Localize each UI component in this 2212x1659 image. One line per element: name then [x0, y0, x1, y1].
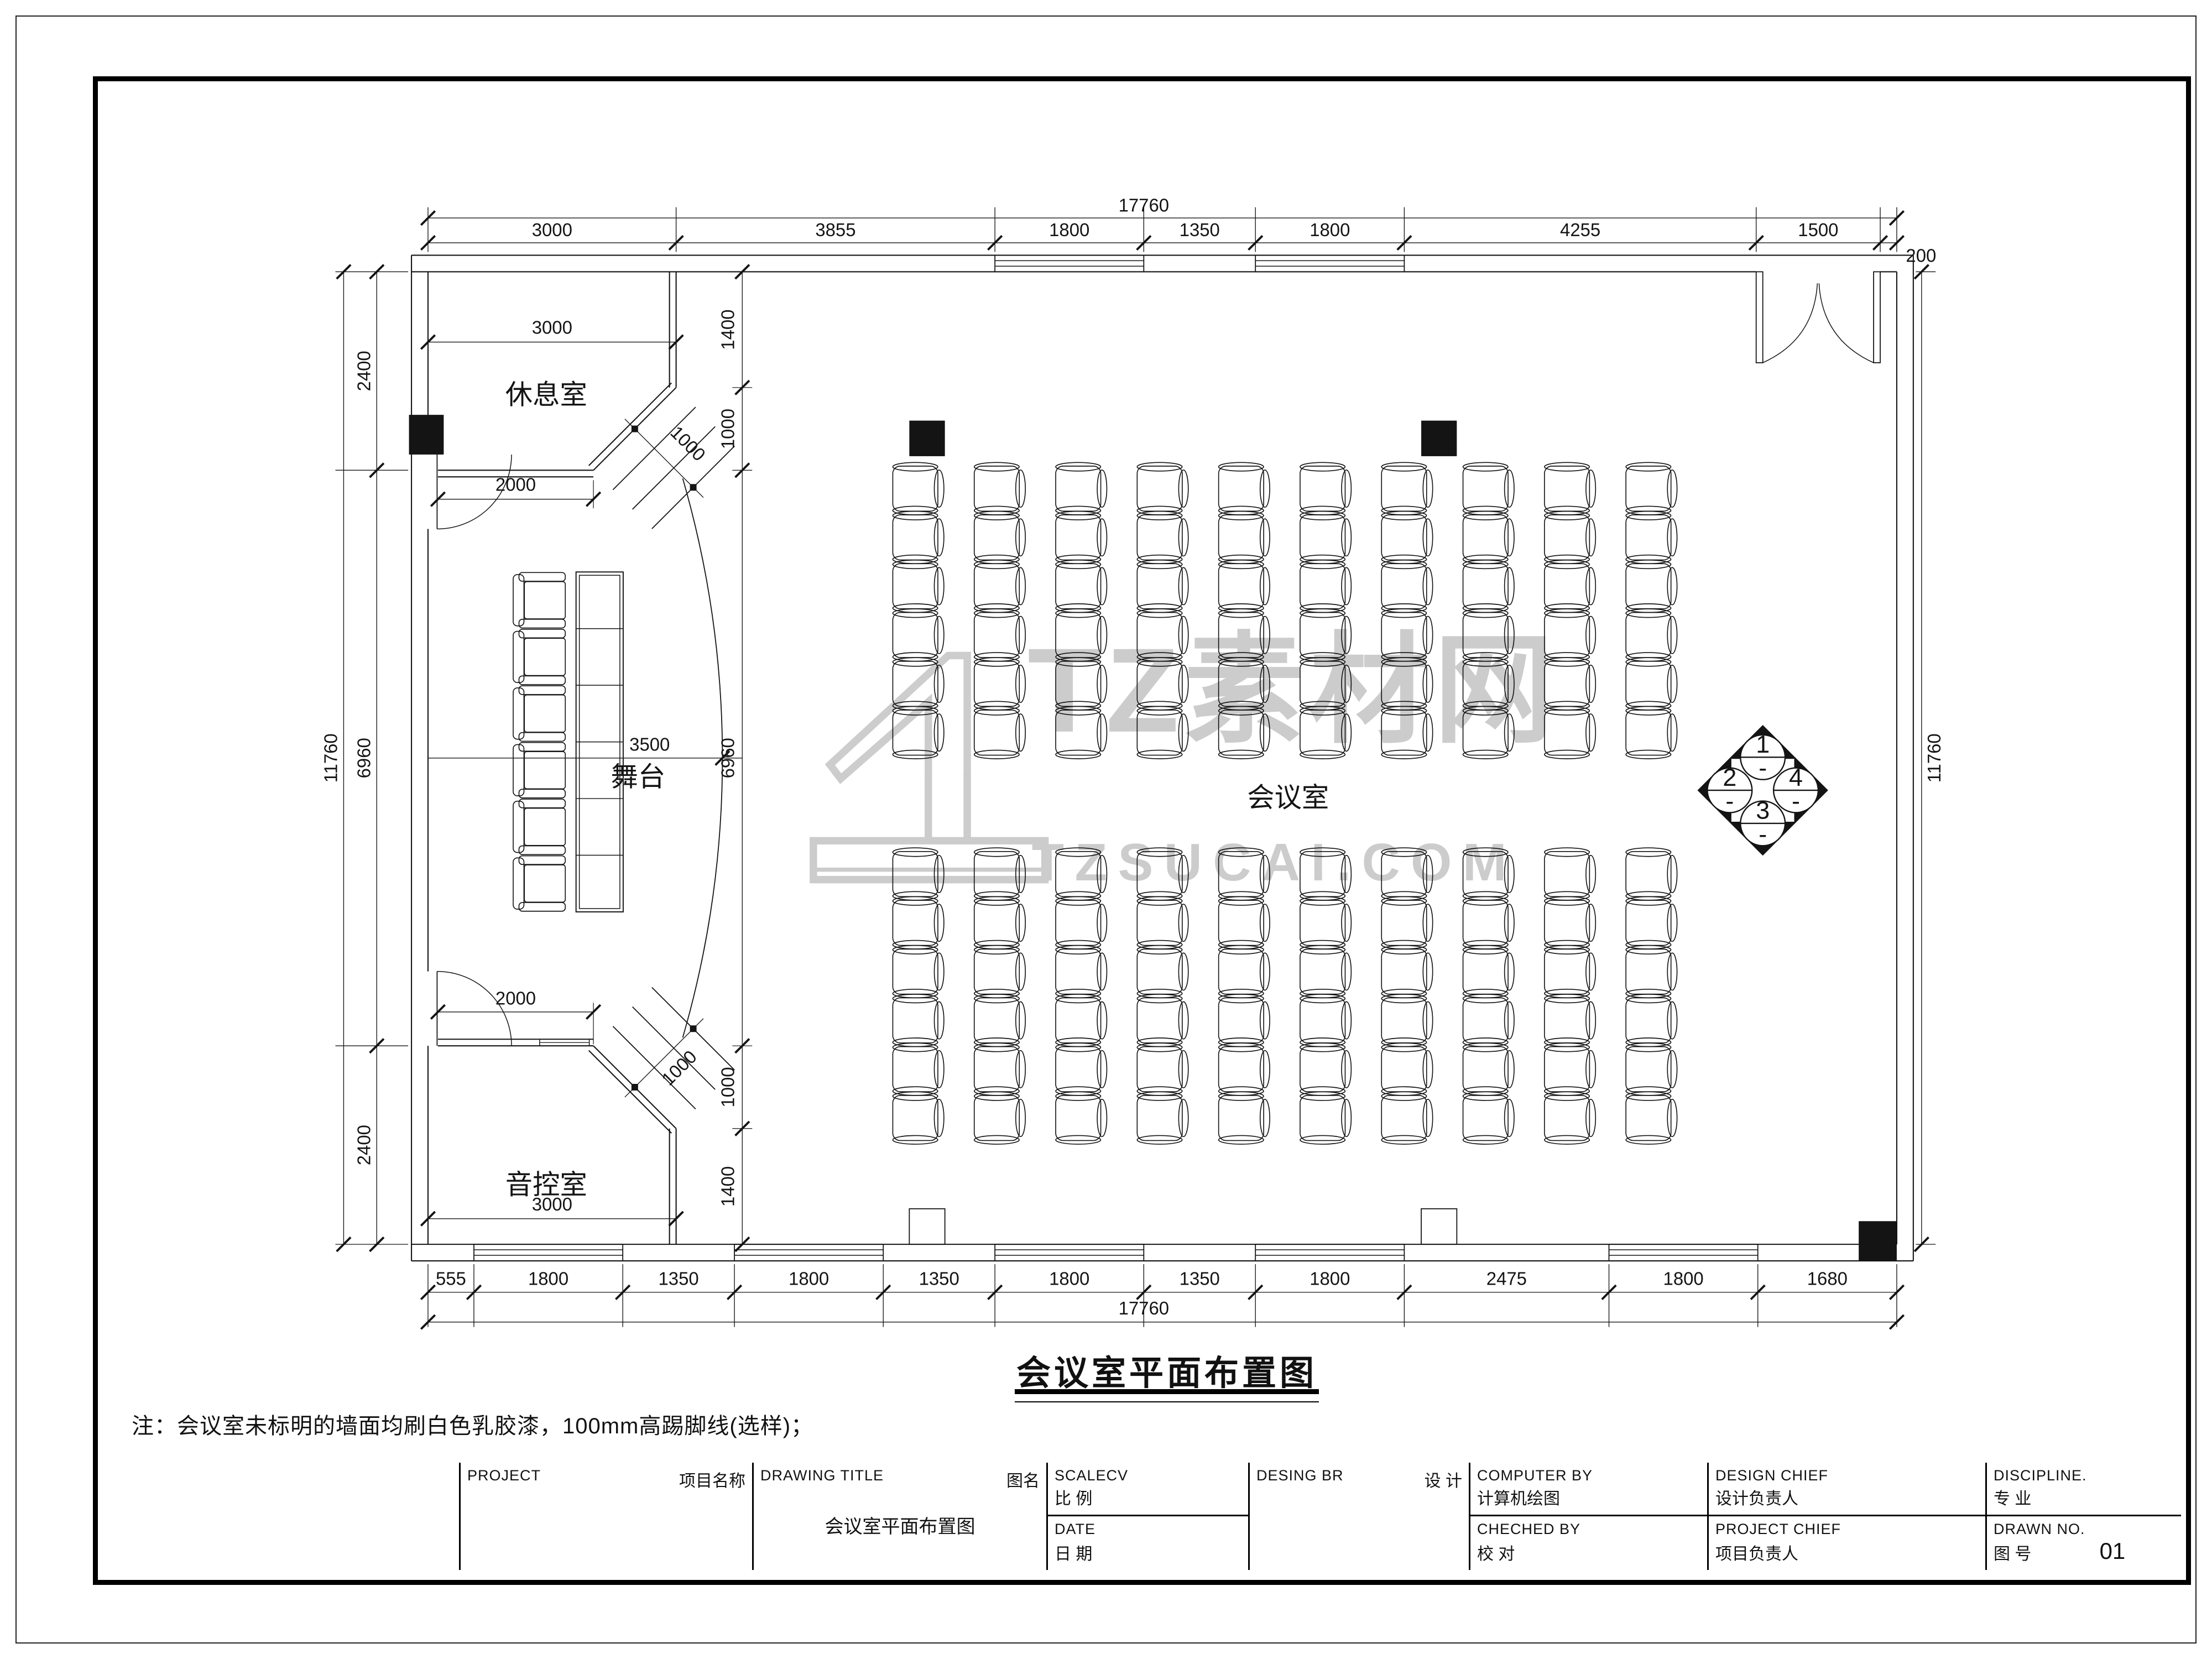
svg-text:2400: 2400 [353, 351, 374, 391]
svg-text:3500: 3500 [629, 734, 670, 754]
svg-text:1800: 1800 [1310, 220, 1350, 240]
svg-text:-: - [1759, 820, 1767, 848]
tb-design-chief-cell: DESIGN CHIEF 设计负责人 [1707, 1463, 1985, 1516]
svg-text:音控室: 音控室 [505, 1170, 587, 1200]
svg-text:会议室: 会议室 [1247, 782, 1329, 813]
tb-design-chief-zh: 设计负责人 [1715, 1485, 1979, 1509]
tb-computer-cell: COMPUTER BY 计算机绘图 [1469, 1463, 1707, 1516]
svg-text:1350: 1350 [919, 1268, 959, 1288]
svg-text:2475: 2475 [1486, 1268, 1527, 1288]
tb-project-chief-en: PROJECT CHIEF [1715, 1521, 1979, 1538]
tb-project-chief-zh: 项目负责人 [1715, 1540, 1979, 1564]
title-underline-thin [1015, 1401, 1319, 1402]
elevation-marker: 1-2-3-4- [1698, 725, 1828, 855]
svg-text:-: - [1759, 754, 1767, 782]
svg-text:1800: 1800 [1663, 1268, 1704, 1288]
tb-scale-cell: SCALECV 比 例 [1046, 1463, 1248, 1516]
tb-drawing-title-cell: DRAWING TITLE 图名 会议室平面布置图 [752, 1463, 1046, 1570]
svg-text:休息室: 休息室 [505, 380, 587, 410]
tb-scale-zh: 比 例 [1055, 1485, 1241, 1509]
title-underline-thick [1015, 1389, 1319, 1394]
tb-discipline-zh: 专 业 [1994, 1485, 2174, 1509]
drawing-sheet: TZ素材网TZSUCAI.COM1-2-3-4-3000385518001350… [0, 0, 2212, 1659]
svg-text:1350: 1350 [1180, 220, 1220, 240]
tb-drawn-no-en: DRAWN NO. [1994, 1521, 2174, 1538]
svg-text:2000: 2000 [495, 474, 536, 495]
svg-text:1000: 1000 [717, 1067, 738, 1107]
svg-text:17760: 17760 [1119, 1298, 1169, 1318]
svg-text:1500: 1500 [1798, 220, 1838, 240]
svg-text:11760: 11760 [1924, 733, 1944, 782]
svg-text:-: - [1792, 787, 1800, 815]
svg-text:1000: 1000 [666, 422, 709, 465]
tb-drawing-title-value: 会议室平面布置图 [754, 1511, 1046, 1538]
tb-date-en: DATE [1055, 1521, 1241, 1538]
svg-text:1000: 1000 [717, 409, 738, 449]
svg-text:2000: 2000 [495, 988, 536, 1008]
svg-text:TZ素材网: TZ素材网 [1027, 623, 1558, 757]
tb-design-en: DESING BR [1256, 1467, 1344, 1491]
svg-text:200: 200 [1906, 245, 1936, 265]
svg-text:1800: 1800 [789, 1268, 829, 1288]
tb-drawing-title-zh: 图名 [1006, 1467, 1040, 1491]
tb-design-chief-en: DESIGN CHIEF [1715, 1467, 1979, 1484]
tb-discipline-en: DISCIPLINE. [1994, 1467, 2174, 1484]
svg-text:6960: 6960 [353, 738, 374, 778]
tb-drawing-title-en: DRAWING TITLE [760, 1467, 884, 1491]
tb-design-cell: DESING BR 设 计 [1248, 1463, 1469, 1570]
svg-text:4255: 4255 [1560, 220, 1600, 240]
svg-text:1350: 1350 [1180, 1268, 1220, 1288]
tb-project-cell: PROJECT 项目名称 [459, 1463, 752, 1570]
tb-project-en: PROJECT [467, 1467, 541, 1491]
note-text: 注：会议室未标明的墙面均刷白色乳胶漆，100mm高踢脚线(选样)； [132, 1408, 813, 1440]
tb-project-zh: 项目名称 [679, 1467, 745, 1491]
svg-text:3000: 3000 [532, 317, 572, 338]
svg-text:17760: 17760 [1119, 195, 1169, 215]
floor-plan: TZ素材网TZSUCAI.COM1-2-3-4-3000385518001350… [205, 77, 2107, 1359]
tb-design-zh: 设 计 [1425, 1467, 1462, 1491]
svg-text:1800: 1800 [1049, 220, 1089, 240]
room-labels: 休息室舞台音控室会议室 [505, 380, 1329, 1200]
page-title: 会议室平面布置图 [990, 1345, 1344, 1395]
tb-drawn-no-value: 01 [2100, 1538, 2126, 1564]
dimensions: 3000385518001350180042551500177602005551… [320, 195, 1944, 1329]
tb-date-zh: 日 期 [1055, 1540, 1241, 1564]
tb-checked-en: CHECHED BY [1477, 1521, 1700, 1538]
tb-computer-en: COMPUTER BY [1477, 1467, 1700, 1484]
tb-drawn-no-cell: DRAWN NO. 图 号 01 [1985, 1516, 2181, 1570]
svg-text:3855: 3855 [815, 220, 855, 240]
svg-text:1800: 1800 [1310, 1268, 1350, 1288]
svg-text:-: - [1725, 787, 1734, 815]
tb-checked-cell: CHECHED BY 校 对 [1469, 1516, 1707, 1570]
svg-text:2400: 2400 [353, 1125, 374, 1165]
tb-discipline-cell: DISCIPLINE. 专 业 [1985, 1463, 2181, 1516]
svg-text:TZSUCAI.COM: TZSUCAI.COM [1032, 833, 1517, 892]
svg-text:11760: 11760 [320, 733, 341, 782]
tb-checked-zh: 校 对 [1477, 1540, 1700, 1564]
tb-project-chief-cell: PROJECT CHIEF 项目负责人 [1707, 1516, 1985, 1570]
svg-text:3000: 3000 [532, 220, 572, 240]
svg-text:1400: 1400 [717, 1166, 738, 1207]
svg-text:1400: 1400 [717, 310, 738, 350]
tb-drawn-no-zh: 图 号 [1994, 1540, 2174, 1564]
svg-text:555: 555 [436, 1268, 466, 1288]
svg-text:1680: 1680 [1807, 1268, 1848, 1288]
svg-text:1800: 1800 [528, 1268, 568, 1288]
tb-scale-en: SCALECV [1055, 1467, 1241, 1484]
tb-date-cell: DATE 日 期 [1046, 1516, 1248, 1570]
tb-computer-zh: 计算机绘图 [1477, 1485, 1700, 1509]
svg-text:舞台: 舞台 [611, 762, 665, 792]
svg-text:1800: 1800 [1049, 1268, 1089, 1288]
svg-text:1350: 1350 [659, 1268, 699, 1288]
